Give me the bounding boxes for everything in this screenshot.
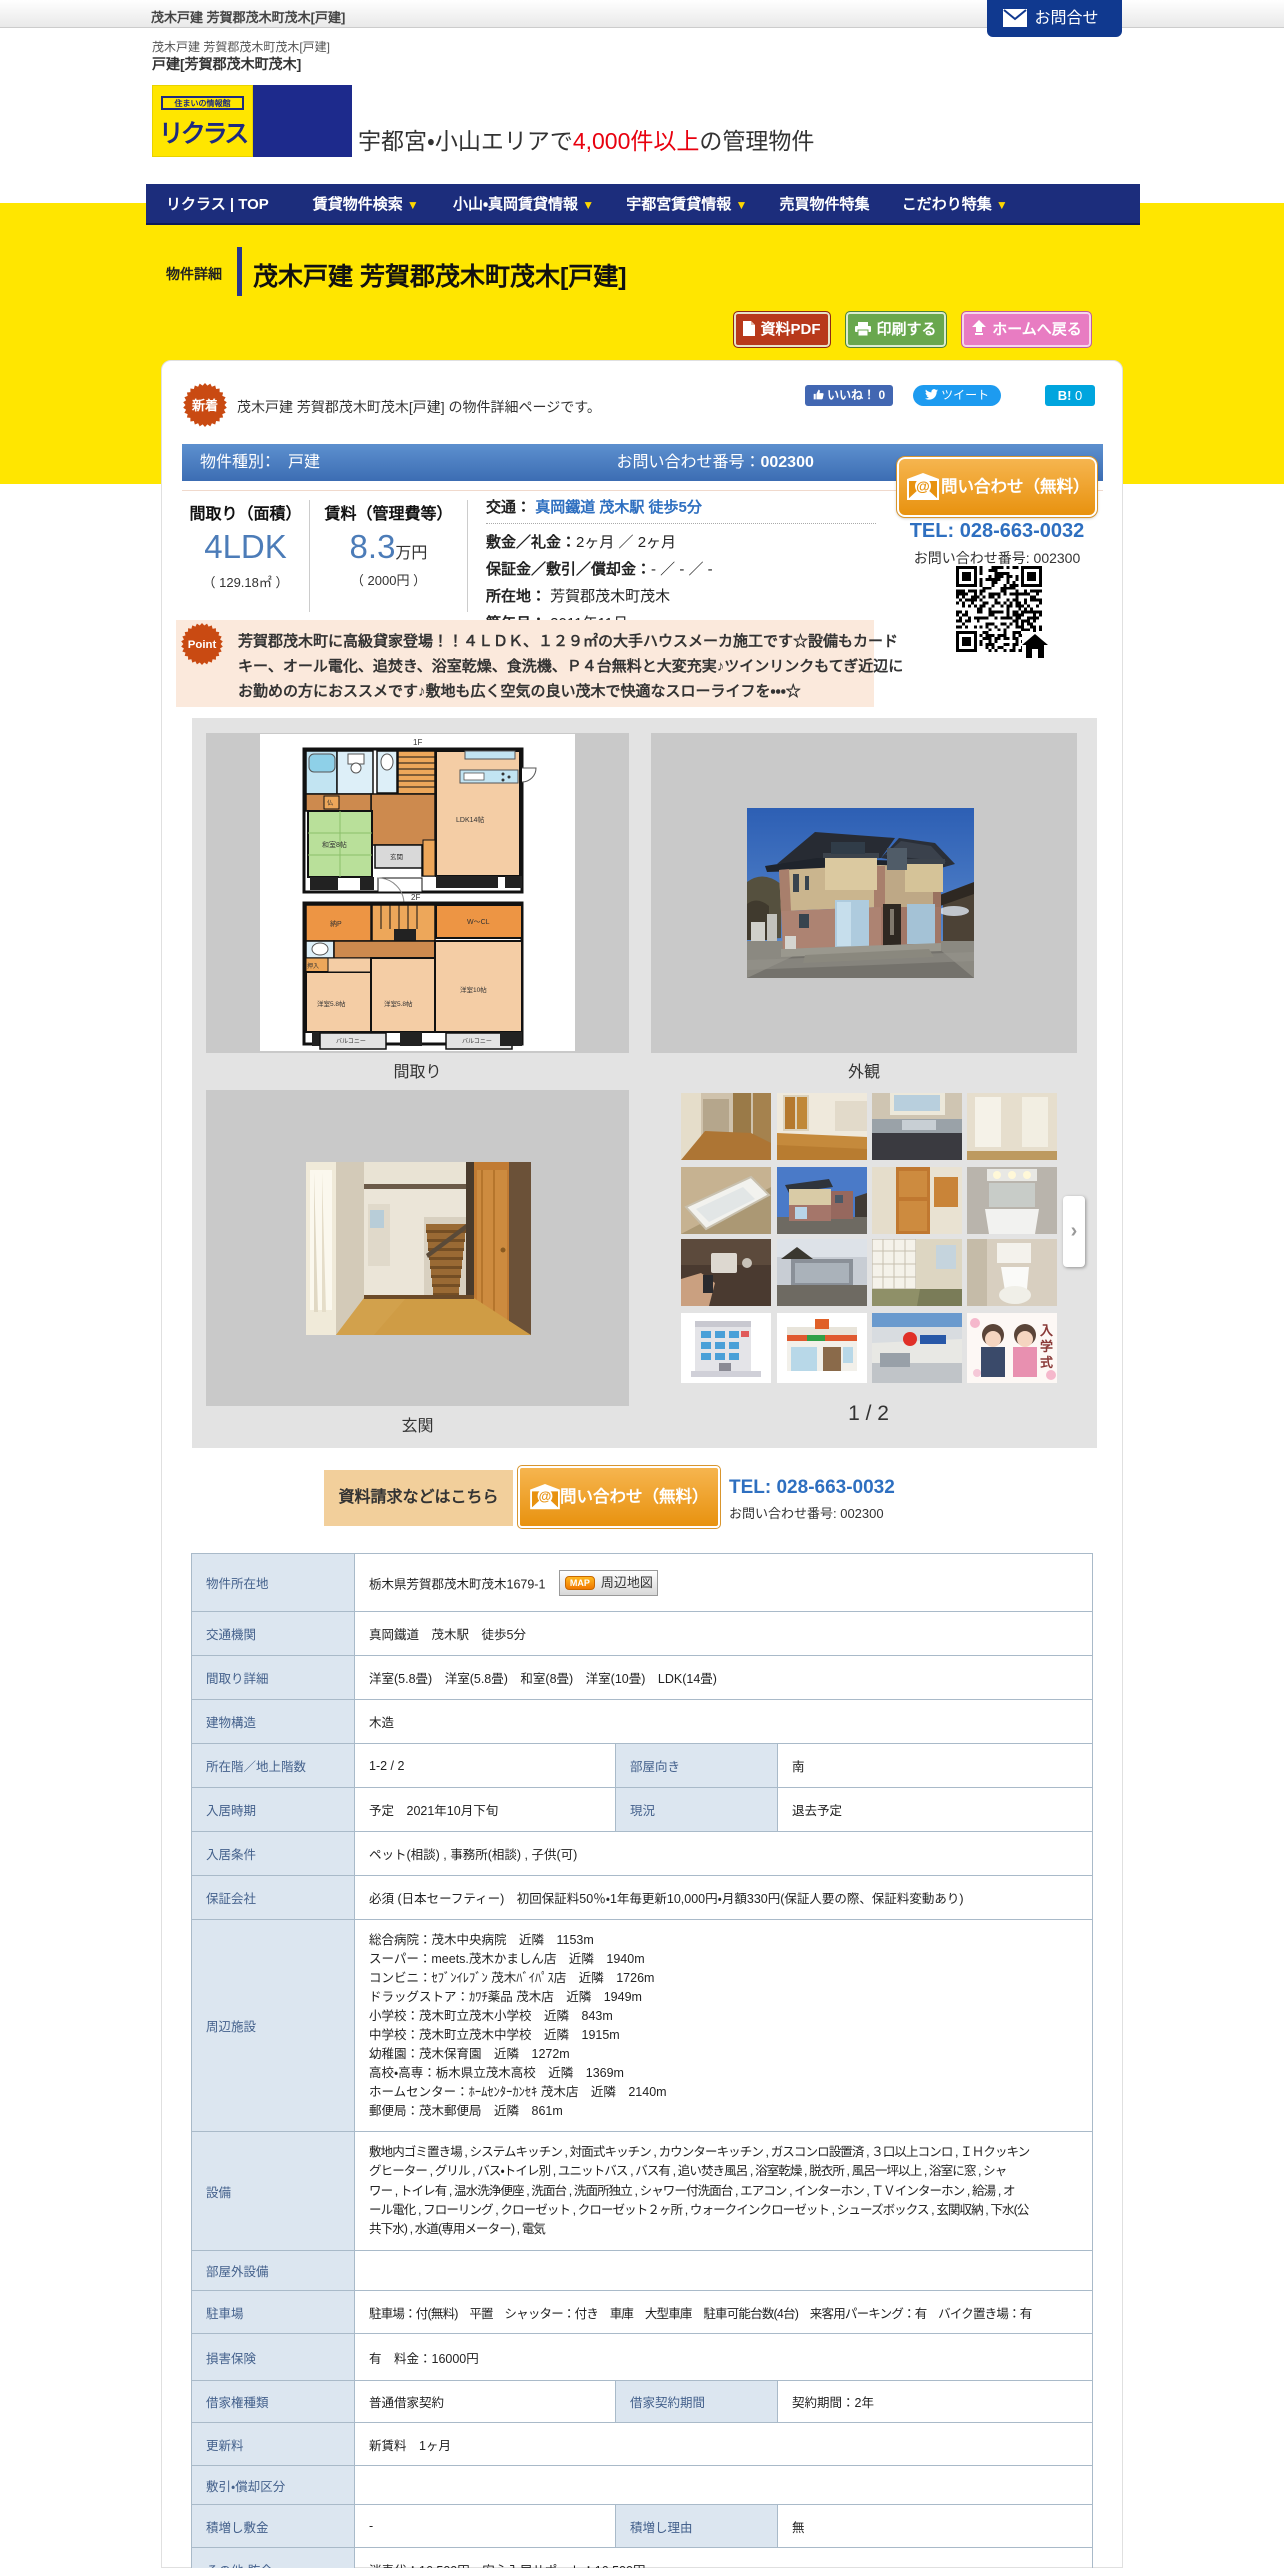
svg-text:入: 入 [1039,1323,1054,1338]
svg-text:Point: Point [188,639,217,651]
svg-text:2F: 2F [411,893,420,902]
svg-text:洋室5.8帖: 洋室5.8帖 [384,999,413,1008]
svg-text:@: @ [539,1489,552,1504]
svg-text:納P: 納P [330,919,342,928]
svg-text:玄関: 玄関 [390,852,403,861]
svg-text:押入: 押入 [307,962,319,970]
svg-text:バルコニー: バルコニー [462,1038,492,1045]
svg-text:学: 学 [1040,1339,1053,1354]
svg-text:1F: 1F [413,738,422,747]
svg-text:@: @ [916,478,930,494]
svg-text:W～CL: W～CL [467,919,490,926]
svg-text:洋室5.8帖: 洋室5.8帖 [317,999,346,1008]
svg-text:洋室10帖: 洋室10帖 [460,985,487,994]
svg-text:新着: 新着 [191,398,218,413]
svg-text:LDK14帖: LDK14帖 [456,815,484,824]
svg-text:和室8帖: 和室8帖 [322,840,347,849]
svg-text:仏: 仏 [327,799,333,807]
svg-text:バルコニー: バルコニー [336,1038,366,1045]
svg-text:式: 式 [1040,1355,1053,1370]
